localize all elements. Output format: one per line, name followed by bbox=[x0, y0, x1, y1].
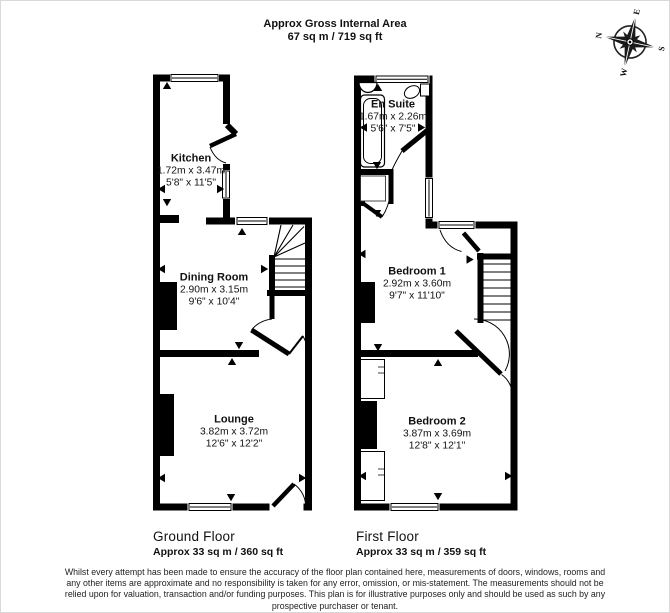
ff-sink bbox=[359, 83, 377, 93]
page-title: Approx Gross Internal Area 67 sq m / 719… bbox=[1, 18, 669, 43]
ground-floor-caption: Ground Floor Approx 33 sq m / 360 sq ft bbox=[153, 529, 283, 559]
gf-lounge-chimney-breast bbox=[157, 394, 174, 456]
ff-landing-top-window bbox=[438, 221, 476, 230]
gf-dining-chimney-breast bbox=[159, 282, 177, 330]
room-label-kitchen: Kitchen 1.72m x 3.47m 5'8" x 11'5" bbox=[157, 152, 225, 189]
compass-e-label: E bbox=[631, 8, 642, 16]
gf-dining-window bbox=[235, 216, 269, 226]
gf-front-door bbox=[270, 484, 306, 512]
disclaimer-line: relied upon for valuation, transaction a… bbox=[1, 589, 669, 600]
title-line2: 67 sq m / 719 sq ft bbox=[1, 31, 669, 44]
ff-bedroom2-window bbox=[390, 503, 440, 512]
compass-s-label: S bbox=[656, 45, 667, 52]
ff-bedroom2-chimney-breast bbox=[357, 401, 377, 449]
disclaimer-line: prospective purchaser or tenant. bbox=[1, 601, 669, 612]
gf-kitchen-top-window bbox=[170, 74, 219, 83]
floorplan-drawing: N E S W bbox=[1, 1, 670, 613]
ff-bedroom1-chimney-breast bbox=[358, 282, 375, 323]
room-label-en-suite: En Suite 1.67m x 2.26m 5'6" x 7'5" bbox=[359, 98, 427, 135]
ff-bedroom1-top-door bbox=[440, 230, 479, 252]
ff-landing-side-window bbox=[425, 178, 434, 219]
room-label-lounge: Lounge 3.82m x 3.72m 12'6" x 12'2" bbox=[200, 413, 268, 450]
ff-staircase bbox=[477, 253, 514, 323]
room-label-bedroom-1: Bedroom 1 2.92m x 3.60m 9'7" x 11'10" bbox=[383, 265, 451, 302]
ff-ensuite-top-window bbox=[375, 75, 430, 84]
gf-lounge-window bbox=[188, 502, 233, 512]
first-floor-caption: First Floor Approx 33 sq m / 359 sq ft bbox=[356, 529, 486, 559]
room-label-dining-room: Dining Room 2.90m x 3.15m 9'6" x 10'4" bbox=[180, 271, 248, 308]
disclaimer: Whilst every attempt has been made to en… bbox=[1, 567, 669, 612]
gf-hall-doors bbox=[252, 296, 309, 354]
floorplan-page: N E S W Approx Gross Internal Area 67 sq… bbox=[0, 0, 670, 613]
disclaimer-line: Whilst every attempt has been made to en… bbox=[1, 567, 669, 578]
title-line1: Approx Gross Internal Area bbox=[1, 18, 669, 31]
disclaimer-line: any other items are approximate and no r… bbox=[1, 578, 669, 589]
room-label-bedroom-2: Bedroom 2 3.87m x 3.69m 12'8" x 12'1" bbox=[403, 415, 471, 452]
compass-w-label: W bbox=[618, 67, 630, 78]
